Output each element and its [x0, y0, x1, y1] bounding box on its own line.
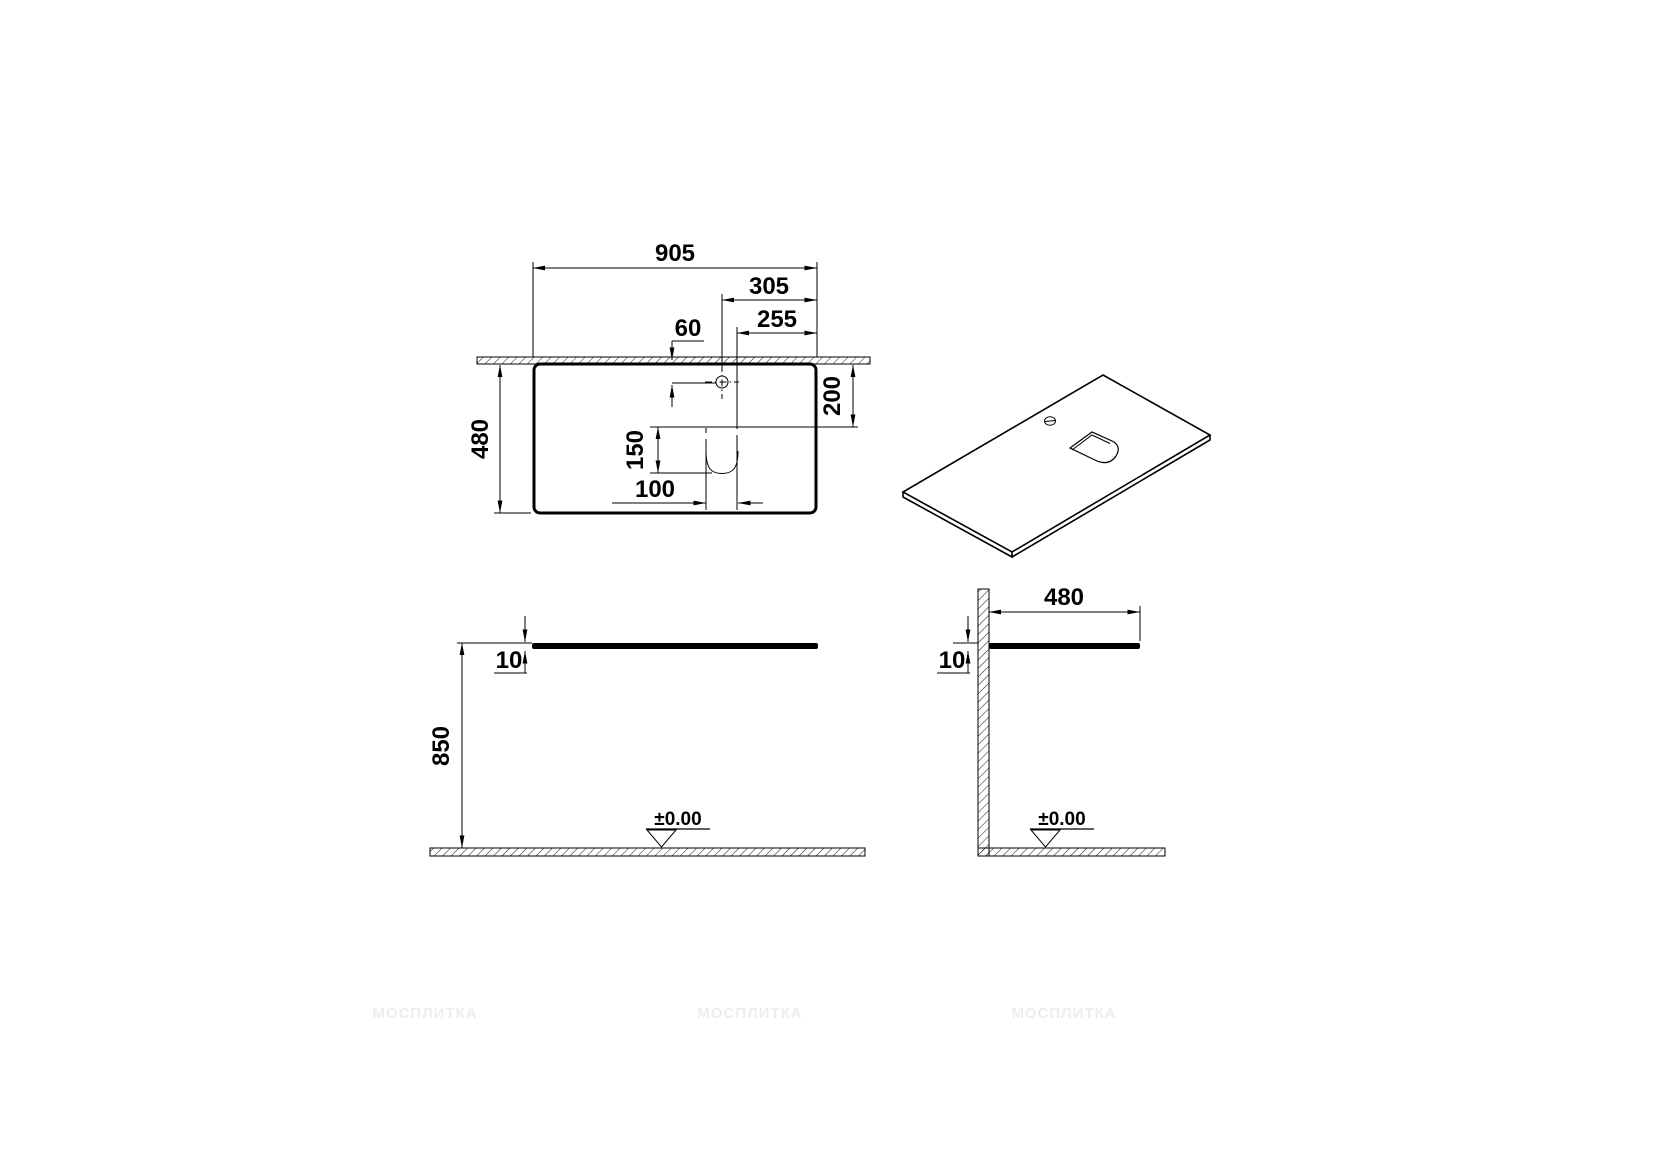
level-marker-side: ±0.00 [1030, 809, 1094, 847]
watermark-text: МОСПЛИТКА [697, 1005, 802, 1022]
side-view: ±0.00 480 10 [937, 584, 1165, 856]
level-label-side: ±0.00 [1038, 809, 1085, 830]
countertop-edge-side [989, 643, 1140, 649]
floor-hatch-side [978, 848, 1165, 856]
level-marker-front: ±0.00 [646, 809, 710, 847]
dim-label-cutout-width: 100 [635, 476, 675, 503]
watermark-row: МОСПЛИТКА МОСПЛИТКА МОСПЛИТКА [372, 1005, 1116, 1022]
level-triangle-side [1031, 830, 1060, 847]
dim-label-hole-offset: 305 [749, 273, 789, 300]
dim-label-cutout-from-wall: 200 [819, 376, 846, 416]
wall-hatch-side [978, 589, 989, 856]
top-view: 905 305 255 60 480 200 150 100 [467, 240, 870, 513]
drawing-canvas: 905 305 255 60 480 200 150 100 [0, 0, 1653, 1167]
iso-faucet-hole [1045, 417, 1056, 425]
dim-lines-side [937, 606, 1140, 673]
level-triangle-front [647, 830, 676, 847]
watermark-text: МОСПЛИТКА [1011, 1005, 1116, 1022]
level-label-front: ±0.00 [654, 809, 701, 830]
dim-label-hole-from-wall: 60 [675, 315, 702, 342]
countertop-edge-front [532, 643, 818, 649]
dim-label-depth: 480 [467, 419, 494, 459]
dim-label-cutout-length: 150 [622, 430, 649, 470]
front-view: ±0.00 10 850 [428, 616, 865, 856]
iso-plate-thickness [903, 435, 1210, 557]
dim-label-width: 905 [655, 240, 695, 267]
dim-label-side-depth: 480 [1044, 584, 1084, 611]
iso-plate-outline [903, 375, 1210, 552]
iso-basin-cutout [1070, 432, 1118, 463]
dim-label-side-thickness: 10 [939, 647, 966, 674]
dim-label-front-thickness: 10 [496, 647, 523, 674]
floor-hatch-front [430, 848, 865, 856]
dim-label-cutout-offset: 255 [757, 306, 797, 333]
watermark-text: МОСПЛИТКА [372, 1005, 477, 1022]
isometric-view [903, 375, 1210, 557]
dim-label-front-height: 850 [428, 726, 455, 766]
